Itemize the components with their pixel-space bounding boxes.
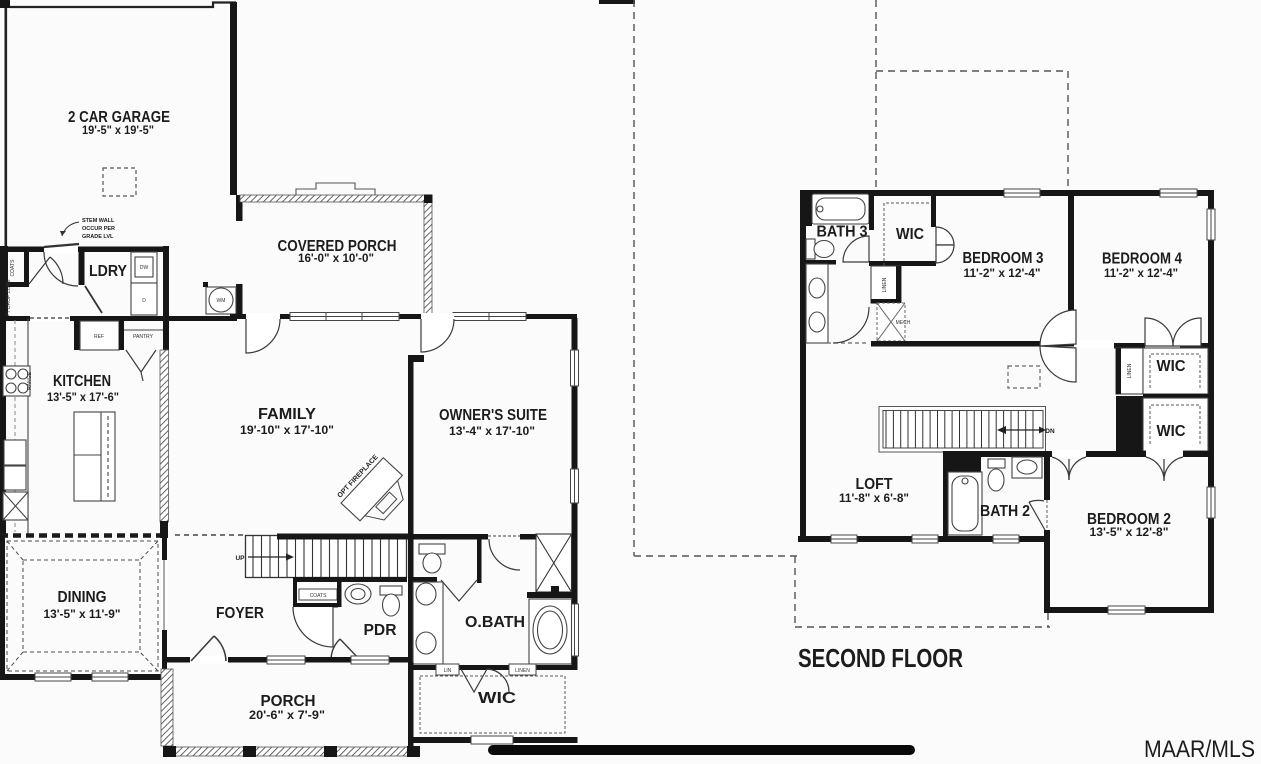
- svg-text:GRADE LVL: GRADE LVL: [82, 234, 114, 240]
- svg-text:13'-5" x 12'-8": 13'-5" x 12'-8": [1090, 525, 1169, 539]
- svg-text:11'-2" x 12'-4": 11'-2" x 12'-4": [964, 266, 1041, 280]
- svg-text:DINING: DINING: [58, 589, 107, 606]
- svg-text:WM: WM: [217, 298, 226, 304]
- svg-text:COATS: COATS: [310, 593, 328, 599]
- svg-text:BEDROOM 4: BEDROOM 4: [1102, 251, 1182, 268]
- svg-text:WIC: WIC: [896, 226, 924, 243]
- svg-text:LINEN: LINEN: [515, 668, 530, 674]
- svg-text:13'-5" x 17'-6": 13'-5" x 17'-6": [47, 390, 119, 404]
- svg-text:LIN: LIN: [444, 668, 452, 674]
- svg-text:MAAR/MLS: MAAR/MLS: [1144, 736, 1255, 763]
- svg-text:WIC: WIC: [1157, 423, 1186, 440]
- svg-text:13'-5" x 11'-9": 13'-5" x 11'-9": [44, 607, 121, 621]
- svg-text:WIC: WIC: [478, 690, 517, 707]
- svg-text:11'-8" x 6'-8": 11'-8" x 6'-8": [839, 491, 909, 505]
- svg-text:19'-10" x 17'-10": 19'-10" x 17'-10": [240, 423, 334, 437]
- svg-text:KITCHEN: KITCHEN: [53, 373, 111, 390]
- svg-text:RANGE: RANGE: [27, 371, 33, 389]
- svg-text:DN: DN: [1045, 428, 1055, 435]
- svg-text:19'-5" x 19'-5": 19'-5" x 19'-5": [82, 123, 154, 137]
- svg-text:BATH 2: BATH 2: [980, 503, 1030, 520]
- svg-text:REF: REF: [94, 334, 104, 340]
- svg-text:O.BATH: O.BATH: [465, 614, 525, 631]
- svg-text:OCCUR PER: OCCUR PER: [82, 226, 115, 232]
- svg-text:COATS: COATS: [10, 259, 16, 277]
- svg-text:MECH: MECH: [896, 320, 911, 326]
- svg-text:LINEN: LINEN: [882, 277, 888, 292]
- svg-text:STEM WALL: STEM WALL: [82, 218, 115, 224]
- svg-text:BEDROOM 3: BEDROOM 3: [963, 250, 1044, 267]
- svg-text:WIC: WIC: [1157, 358, 1186, 375]
- svg-text:FAMILY: FAMILY: [258, 406, 316, 423]
- svg-text:20'-6" x 7'-9": 20'-6" x 7'-9": [249, 708, 325, 722]
- svg-text:DW: DW: [140, 265, 149, 271]
- svg-text:OPT DROP ZONE: OPT DROP ZONE: [6, 279, 12, 321]
- svg-text:UP: UP: [235, 555, 245, 562]
- svg-text:PANTRY: PANTRY: [133, 334, 153, 340]
- svg-text:LINEN: LINEN: [1127, 363, 1133, 378]
- svg-text:LDRY: LDRY: [89, 263, 127, 280]
- svg-text:FOYER: FOYER: [216, 605, 264, 622]
- svg-text:11'-2" x 12'-4": 11'-2" x 12'-4": [1104, 266, 1178, 280]
- svg-text:PDR: PDR: [364, 622, 397, 639]
- svg-text:SECOND FLOOR: SECOND FLOOR: [798, 643, 963, 673]
- svg-text:D: D: [142, 298, 146, 304]
- svg-text:13'-4" x 17'-10": 13'-4" x 17'-10": [449, 424, 535, 438]
- svg-text:OWNER'S SUITE: OWNER'S SUITE: [439, 407, 547, 424]
- svg-text:16'-0" x 10'-0": 16'-0" x 10'-0": [298, 251, 374, 265]
